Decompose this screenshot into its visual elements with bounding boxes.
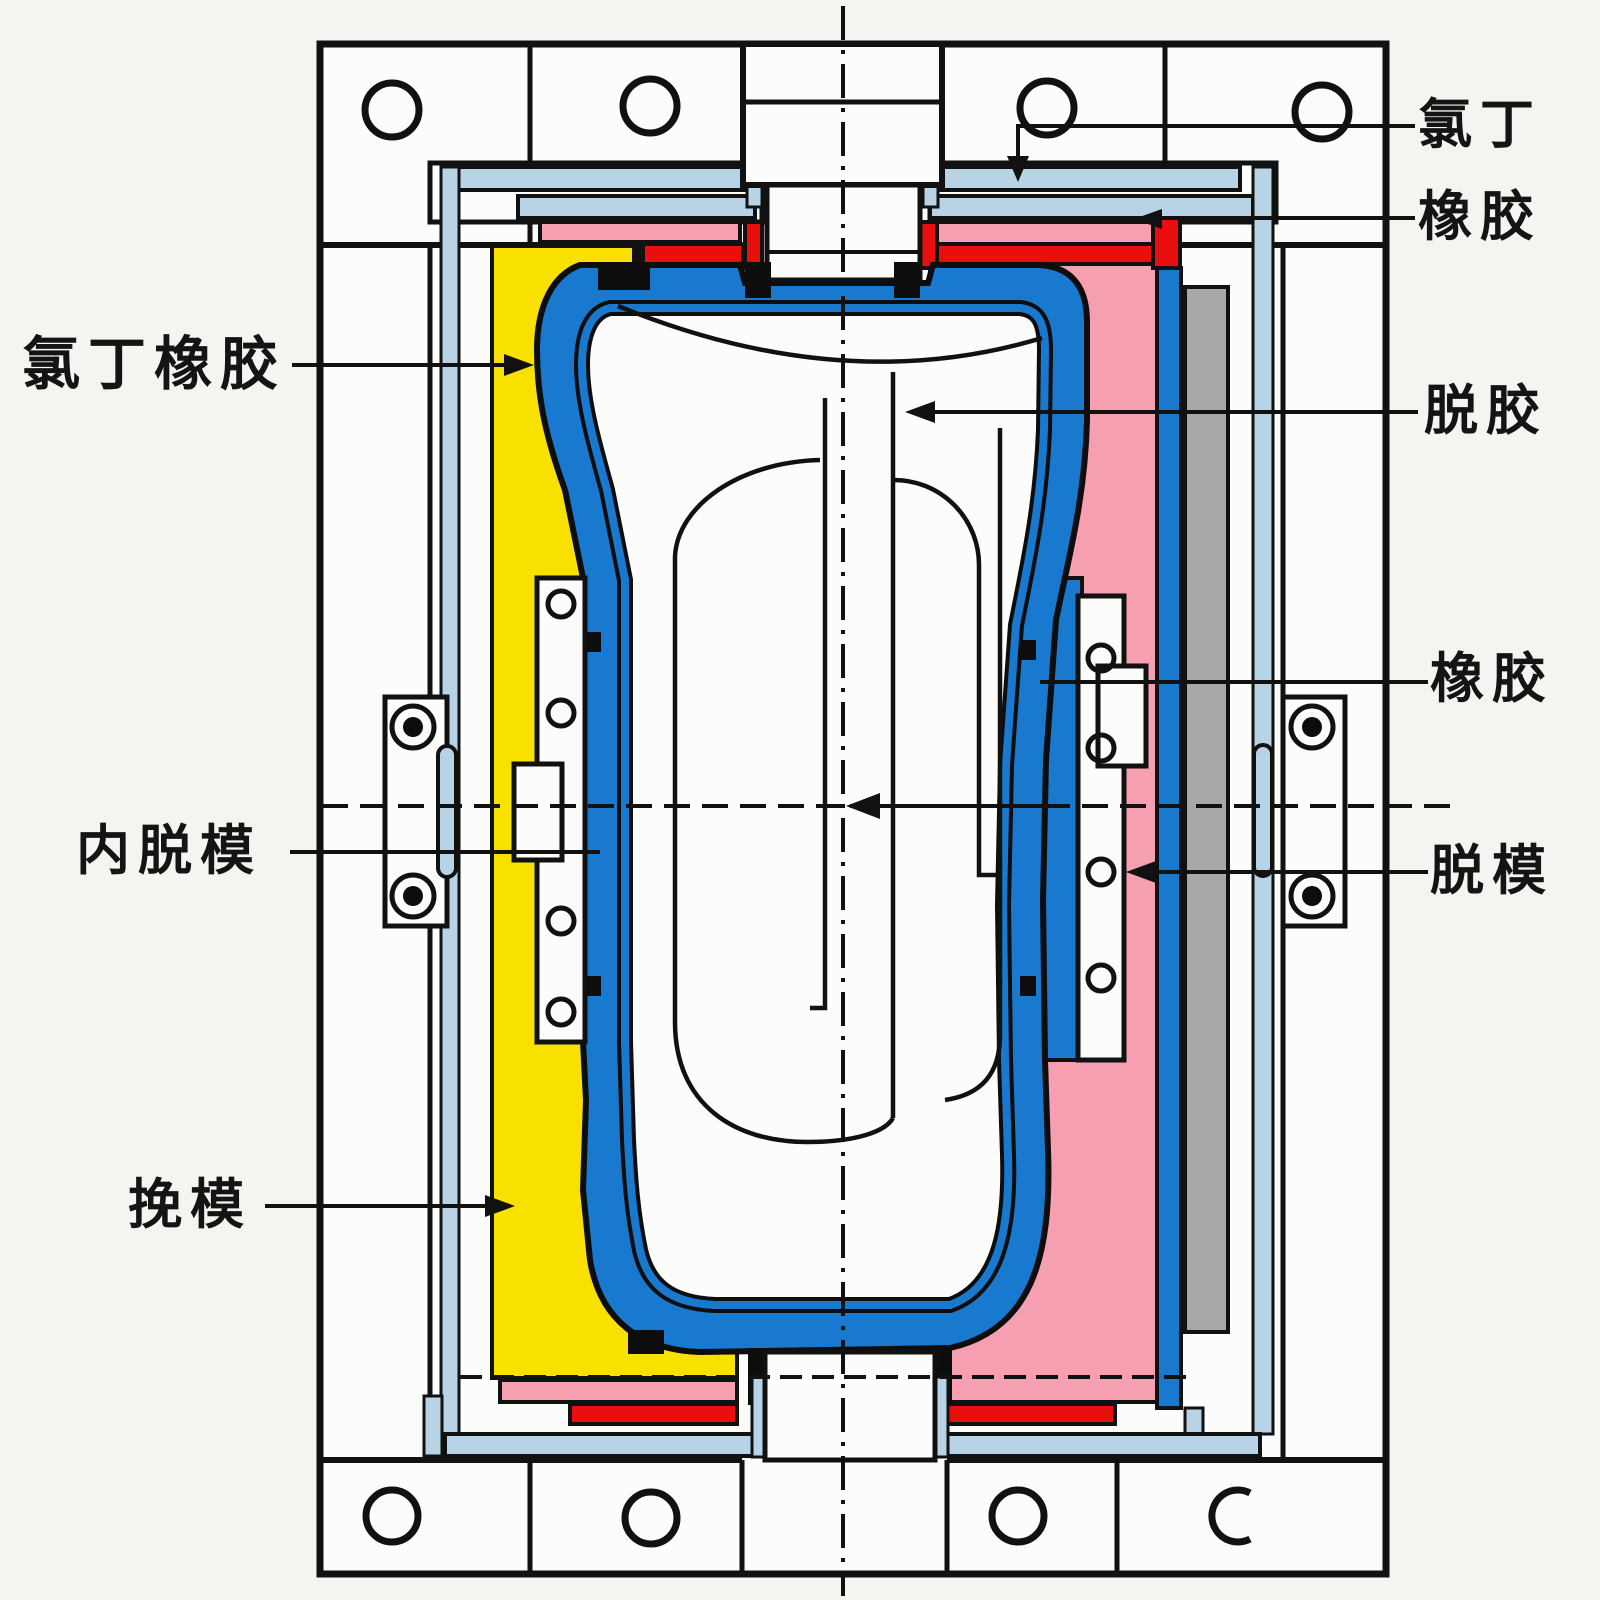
label-inner-demold: 内脱模 [76, 824, 262, 878]
bladder-band [537, 265, 1087, 1354]
diagram-canvas: 氯丁 橡胶 氯丁橡胶 脱胶 橡胶 内脱模 脱模 挽模 [0, 0, 1600, 1600]
band-pad [1020, 640, 1036, 660]
label-demold: 脱模 [1430, 844, 1554, 898]
label-degumming: 脱胶 [1424, 384, 1548, 438]
left-clamp-bracket [385, 697, 456, 926]
right-gray-bar [1185, 287, 1228, 1332]
label-wan-mold: 挽模 [128, 1178, 252, 1232]
band-pad [598, 268, 650, 290]
label-chloroprene: 氯丁 [1418, 98, 1542, 152]
label-rubber-top: 橡胶 [1418, 190, 1542, 244]
label-rubber-mid: 橡胶 [1430, 652, 1554, 706]
band-pad [1020, 976, 1036, 996]
label-chloroprene-rubber: 氯丁橡胶 [22, 336, 286, 394]
band-pad [628, 1330, 664, 1354]
mold-cross-section-drawing [0, 0, 1600, 1600]
right-blue-bar [1157, 268, 1181, 1408]
